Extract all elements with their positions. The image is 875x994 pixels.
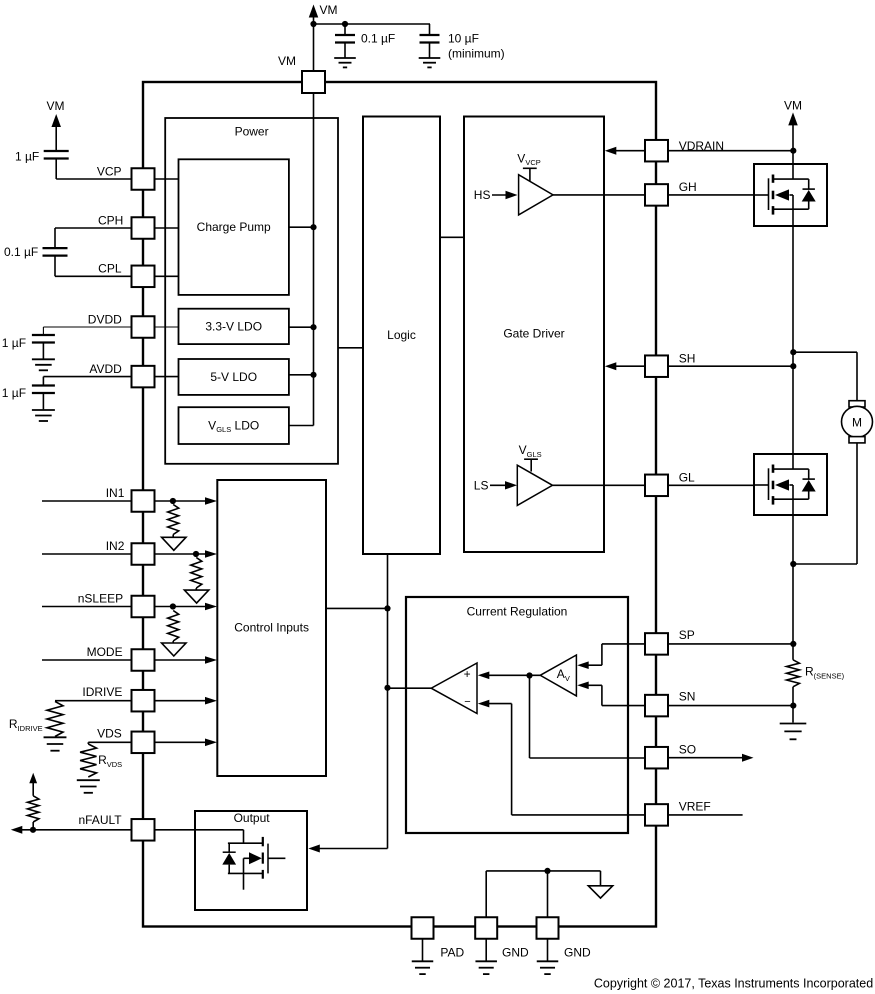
svg-text:Output: Output — [234, 811, 271, 825]
svg-text:0.1 µF: 0.1 µF — [4, 245, 38, 259]
svg-text:Charge Pump: Charge Pump — [197, 220, 271, 234]
svg-text:SN: SN — [679, 690, 696, 704]
svg-text:−: − — [464, 696, 470, 708]
svg-text:1 µF: 1 µF — [15, 149, 39, 163]
svg-text:Logic: Logic — [387, 328, 416, 342]
svg-text:VM: VM — [47, 99, 65, 113]
svg-text:GND: GND — [502, 946, 529, 960]
svg-text:IN2: IN2 — [106, 539, 125, 553]
svg-text:PAD: PAD — [440, 946, 464, 960]
svg-text:VGLS LDO: VGLS LDO — [208, 418, 259, 434]
svg-text:10 µF: 10 µF — [448, 31, 479, 45]
svg-text:Gate Driver: Gate Driver — [503, 326, 564, 340]
svg-text:SP: SP — [679, 628, 695, 642]
svg-text:Control Inputs: Control Inputs — [234, 620, 309, 634]
svg-text:GH: GH — [679, 180, 697, 194]
svg-text:VM: VM — [320, 3, 338, 17]
svg-text:0.1 µF: 0.1 µF — [361, 31, 395, 45]
svg-text:VCP: VCP — [97, 164, 122, 178]
svg-text:GND: GND — [564, 946, 591, 960]
svg-text:1 µF: 1 µF — [2, 336, 26, 350]
svg-text:VM: VM — [784, 98, 802, 112]
svg-text:IN1: IN1 — [106, 486, 125, 500]
svg-text:3.3-V LDO: 3.3-V LDO — [205, 319, 262, 333]
svg-text:nFAULT: nFAULT — [78, 813, 122, 827]
svg-text:M: M — [852, 416, 862, 430]
svg-text:LS: LS — [474, 479, 489, 493]
svg-text:+: + — [464, 667, 471, 681]
svg-text:SH: SH — [679, 352, 696, 366]
svg-text:SO: SO — [679, 743, 696, 757]
svg-text:Copyright © 2017, Texas Instru: Copyright © 2017, Texas Instruments Inco… — [594, 977, 873, 991]
svg-text:Current Regulation: Current Regulation — [467, 604, 568, 618]
svg-text:CPH: CPH — [98, 213, 123, 227]
svg-text:HS: HS — [474, 188, 491, 202]
svg-text:VM: VM — [278, 54, 296, 68]
svg-text:5-V LDO: 5-V LDO — [210, 370, 257, 384]
svg-text:DVDD: DVDD — [88, 312, 122, 326]
svg-text:Power: Power — [235, 124, 269, 138]
svg-text:AVDD: AVDD — [89, 362, 122, 376]
svg-text:(minimum): (minimum) — [448, 47, 505, 61]
svg-text:1 µF: 1 µF — [2, 386, 26, 400]
svg-text:VREF: VREF — [679, 800, 711, 814]
svg-text:VDRAIN: VDRAIN — [679, 139, 724, 153]
svg-text:GL: GL — [679, 470, 695, 484]
svg-text:VDS: VDS — [97, 727, 122, 741]
svg-text:nSLEEP: nSLEEP — [78, 592, 123, 606]
svg-text:MODE: MODE — [87, 645, 123, 659]
svg-text:IDRIVE: IDRIVE — [82, 685, 122, 699]
svg-text:CPL: CPL — [98, 262, 122, 276]
